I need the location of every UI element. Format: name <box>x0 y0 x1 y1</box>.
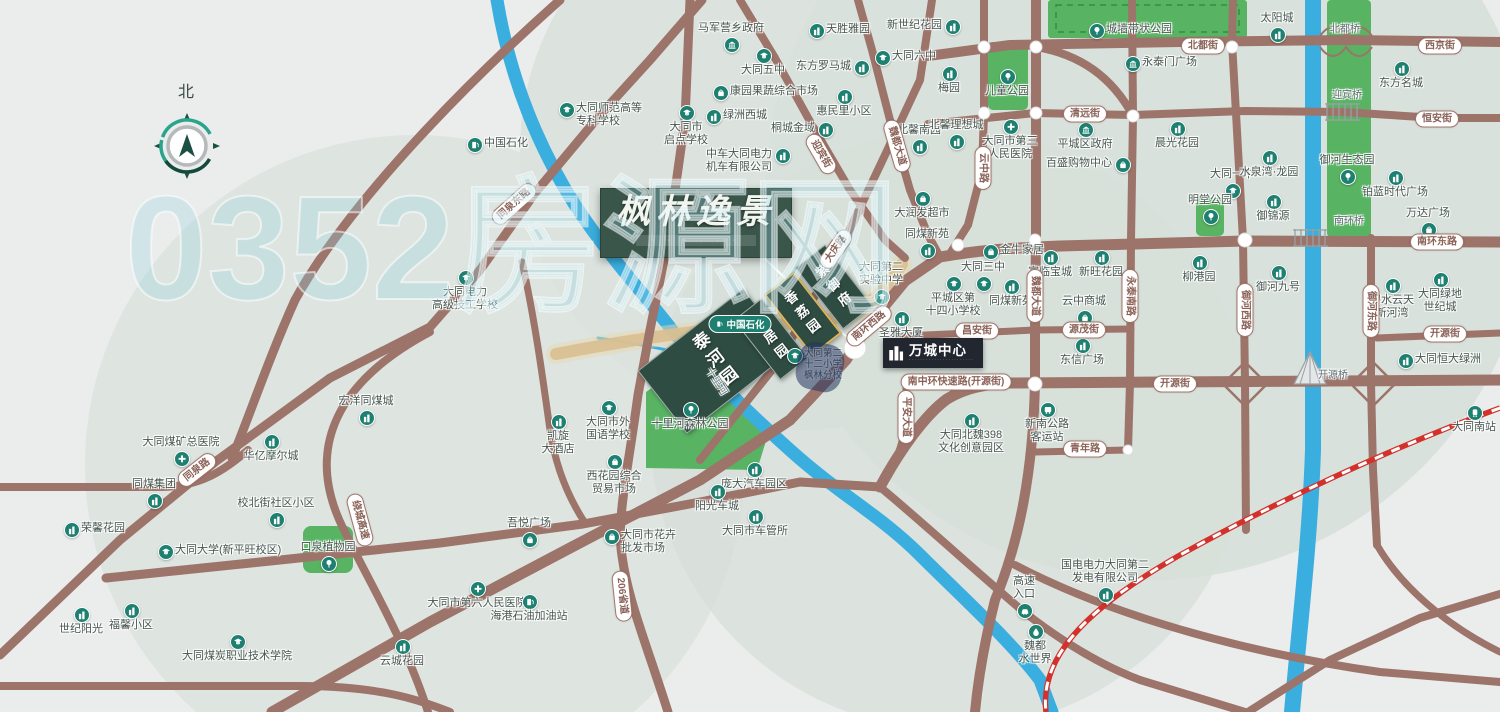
shop-icon <box>1115 157 1131 173</box>
school-icon <box>875 50 891 66</box>
bldg-icon <box>551 414 567 430</box>
poi-label: 东方罗马城 <box>796 60 851 73</box>
school-icon <box>679 105 695 121</box>
landmark-subtext: ······················· <box>909 358 974 362</box>
poi-label: 御河生态园 <box>1320 154 1375 167</box>
poi-label: 马军营乡政府 <box>698 22 764 35</box>
poi-label: 西花园综合贸易市场 <box>587 470 642 496</box>
road-label: 源茂街 <box>1062 322 1106 339</box>
poi-label: 大同六中 <box>892 50 936 63</box>
bldg-icon <box>894 311 910 327</box>
poi-label: 大同五中 <box>741 64 785 77</box>
bldg-icon <box>706 109 722 125</box>
poi-label: 大同三中 <box>961 261 1005 274</box>
bldg-icon <box>920 243 936 259</box>
bldg-icon <box>942 66 958 82</box>
bldg-icon <box>1098 587 1114 603</box>
road-label: 西京街 <box>1418 38 1462 55</box>
bldg-icon <box>748 509 764 525</box>
poi-label: 新世纪花园 <box>887 19 942 32</box>
school-icon <box>874 289 890 305</box>
bldg-icon <box>710 484 726 500</box>
location-map: 枫林逸景 · · · · · · 万城中心 ··················… <box>0 0 1500 712</box>
poi-label: 国电电力大同第二发电有限公司 <box>1061 559 1149 585</box>
poi-label: 世纪阳光 <box>59 623 103 636</box>
school-icon <box>976 276 992 292</box>
park-icon <box>1203 209 1219 225</box>
poi-label: 万达广场 <box>1406 207 1450 220</box>
poi-label: 东方名城 <box>1379 77 1423 90</box>
compass-rose-icon <box>147 102 227 186</box>
poi-label: 平城区第十四小学校 <box>926 292 981 318</box>
poi-label: 康园果蔬综合市场 <box>730 85 818 98</box>
poi-label: 大同煤炭职业技术学院 <box>182 650 292 663</box>
shop-icon <box>915 191 931 207</box>
park-icon <box>321 556 337 572</box>
park-icon <box>683 402 699 418</box>
project-callout: 枫林逸景 · · · · · · <box>600 188 792 258</box>
school-icon <box>458 270 474 286</box>
road-label: 清远街 <box>1063 106 1107 123</box>
poi-label: 惠民里小区 <box>817 105 872 118</box>
bldg-icon <box>945 19 961 35</box>
poi-label: 十里河森林公园 <box>652 418 729 431</box>
road-label: 北都街 <box>1181 38 1225 55</box>
poi-label: 晨光花园 <box>1155 137 1199 150</box>
road-label: 开源街 <box>1153 376 1197 393</box>
bldg-icon <box>74 607 90 623</box>
poi-label: 华亿摩尔城 <box>244 450 299 463</box>
bldg-icon <box>64 522 80 538</box>
poi-label: 高速入口 <box>1013 575 1035 601</box>
train-icon <box>1467 405 1483 421</box>
gov-icon <box>1078 122 1094 138</box>
sinopec-pill: 中国石化 <box>708 315 771 333</box>
project-subtitle: · · · · · · <box>636 235 756 246</box>
road-label: 云中路 <box>975 146 992 190</box>
park-icon <box>1000 69 1016 85</box>
poi-label: 大同师范高等专科学校 <box>576 102 642 128</box>
poi-label: 天胜雅园 <box>826 23 870 36</box>
bldg-icon <box>775 148 791 164</box>
poi-label: 迎宾桥 <box>1332 90 1362 102</box>
poi-label: 云城花园 <box>380 655 424 668</box>
poi-label: 百盛购物中心 <box>1046 157 1112 170</box>
poi-label: 金牛家居 <box>1000 244 1044 257</box>
bldg-icon <box>854 60 870 76</box>
bldg-icon <box>1270 27 1286 43</box>
road-label: 御河东路 <box>1363 284 1380 338</box>
bldg-icon <box>949 134 965 150</box>
poi-label: 大同南站 <box>1452 421 1496 434</box>
bldg-icon <box>1266 194 1282 210</box>
bldg-icon <box>1394 61 1410 77</box>
bldg-icon <box>809 23 825 39</box>
bldg-icon <box>1170 121 1186 137</box>
shop-icon <box>607 454 623 470</box>
bldg-icon <box>395 639 411 655</box>
bldg-icon <box>147 493 163 509</box>
poi-label: 中车大同电力机车有限公司 <box>706 148 772 174</box>
poi-label: 御锦源 <box>1257 210 1290 223</box>
road-label: 南环东路 <box>1410 234 1464 251</box>
shop-icon <box>522 532 538 548</box>
poi-label: 开源桥 <box>1318 370 1348 382</box>
building-logo-icon <box>887 343 905 363</box>
bldg-icon <box>1388 170 1404 186</box>
compass: 北 <box>147 78 227 188</box>
gov-icon <box>724 37 740 53</box>
gas-icon <box>522 594 538 610</box>
bldg-icon <box>964 413 980 429</box>
shop-icon <box>713 85 729 101</box>
gov-icon <box>1125 56 1141 72</box>
bldg-icon <box>1192 255 1208 271</box>
poi-label: 凯旋大酒店 <box>542 430 575 456</box>
school-icon <box>230 634 246 650</box>
shop-icon <box>604 529 620 545</box>
road-label: 开源街 <box>1423 326 1467 343</box>
poi-label: 吾悦广场 <box>507 517 551 530</box>
north-label: 北 <box>147 78 227 102</box>
road-label: 恒安街 <box>1415 111 1459 128</box>
poi-label: 桐城金域 <box>771 122 815 135</box>
gas-icon <box>467 137 483 153</box>
school-icon <box>787 348 803 364</box>
bldg-icon <box>1043 250 1059 266</box>
poi-label: 同煤集团 <box>132 478 176 491</box>
project-name: 枫林逸景 <box>601 189 791 235</box>
gas-icon <box>715 320 723 328</box>
landmark-badge: 万城中心 ······················· <box>883 338 983 368</box>
poi-label: 御河九号 <box>1256 281 1300 294</box>
poi-label: 明堂公园 <box>1188 194 1232 207</box>
poi-label: 荣馨花园 <box>81 522 125 535</box>
bus-icon <box>1040 402 1056 418</box>
poi-label: 大同市花卉批发市场 <box>621 529 676 555</box>
car-icon <box>1017 603 1033 619</box>
bldg-icon <box>747 462 763 478</box>
poi-label: 大同市启点学校 <box>664 121 708 147</box>
landmark-name: 万城中心 <box>909 344 974 358</box>
park-icon <box>1340 169 1356 185</box>
poi-label: 柳港园 <box>1183 271 1216 284</box>
poi-label: 新旺花园 <box>1079 266 1123 279</box>
poi-label: 平城区政府 <box>1058 138 1113 151</box>
road-label: 御河西路 <box>1237 283 1254 337</box>
poi-label: 太阳城 <box>1261 12 1294 25</box>
poi-label: 大同恒大绿洲 <box>1415 353 1481 366</box>
bldg-icon <box>1075 338 1091 354</box>
poi-label: 新南公路客运站 <box>1025 418 1069 444</box>
road-label: 魏都大道 <box>1027 269 1044 323</box>
bldg-icon <box>1433 272 1449 288</box>
hosp-icon <box>174 451 190 467</box>
poi-label: 南环桥 <box>1334 216 1364 228</box>
road-label: 永泰南路 <box>1122 269 1139 323</box>
poi-label: 宏洋同煤城 <box>339 395 394 408</box>
water-icon <box>1028 624 1044 640</box>
poi-label: 梅园 <box>938 82 960 95</box>
park-icon <box>1089 23 1105 39</box>
poi-label: 北都桥 <box>1330 24 1360 36</box>
hosp-icon <box>470 581 486 597</box>
shop-icon <box>983 244 999 260</box>
bldg-icon <box>837 89 853 105</box>
poi-label: 魏都水世界 <box>1019 640 1052 666</box>
bldg-icon <box>1094 250 1110 266</box>
road-label: 南中环快速路(开源街) <box>901 374 1012 391</box>
poi-label: 云中商城 <box>1062 295 1106 308</box>
school-icon <box>756 48 772 64</box>
poi-label: 大同第二十二小学枫林分校 <box>804 348 842 382</box>
bldg-icon <box>1271 265 1287 281</box>
bldg-icon <box>912 139 928 155</box>
poi-label: 口泉植物园 <box>301 541 356 554</box>
poi-label: 福馨小区 <box>109 619 153 632</box>
poi-label: 东信广场 <box>1060 354 1104 367</box>
poi-label: 大同市第六人民医院 <box>428 597 527 610</box>
school-icon <box>946 276 962 292</box>
bldg-icon <box>124 603 140 619</box>
poi-label: 儿童公园 <box>985 85 1029 98</box>
poi-label: 海港石油加油站 <box>491 610 568 623</box>
road-label: 青年路 <box>1063 441 1107 458</box>
bldg-icon <box>359 410 375 426</box>
poi-label: 永泰门广场 <box>1142 56 1197 69</box>
poi-label: 大同电力高级技工学校 <box>432 286 498 312</box>
hosp-icon <box>1003 119 1019 135</box>
poi-label: 城墙带状公园 <box>1106 23 1172 36</box>
poi-label: 大同市车管所 <box>722 525 788 538</box>
poi-label: 大同北魏398文化创意园区 <box>938 429 1004 455</box>
poi-label: 同煤新苑 <box>905 228 949 241</box>
school-icon <box>559 102 575 118</box>
poi-label: 大同第二实验中学 <box>859 261 903 287</box>
road-label: 昌安街 <box>955 323 999 340</box>
bldg-icon <box>1004 279 1020 295</box>
bldg-icon <box>1398 353 1414 369</box>
poi-label: 铂蓝时代广场 <box>1362 186 1428 199</box>
poi-label: 中国石化 <box>484 137 528 150</box>
school-icon <box>158 544 174 560</box>
poi-label: 大润发超市 <box>895 207 950 220</box>
school-icon <box>601 400 617 416</box>
bldg-icon <box>269 512 285 528</box>
bldg-icon <box>1262 150 1278 166</box>
poi-label: 水泉湾·龙园 <box>1240 166 1299 179</box>
poi-label: 阳光车城 <box>695 500 739 513</box>
poi-label: 大同绿地世纪城 <box>1418 288 1462 314</box>
bldg-icon <box>264 434 280 450</box>
poi-label: 庞大汽车园区 <box>721 478 787 491</box>
poi-label: 大同煤矿总医院 <box>143 436 220 449</box>
poi-label: 大同市外国语学校 <box>586 416 630 442</box>
bldg-icon <box>1385 278 1401 294</box>
poi-label: 校北街社区小区 <box>238 497 315 510</box>
poi-label: 北馨理想城 <box>929 119 984 132</box>
poi-label: 大同大学(新平旺校区) <box>175 544 281 557</box>
road-label: 平安大道 <box>898 390 915 444</box>
poi-label: 绿洲西城 <box>723 109 767 122</box>
